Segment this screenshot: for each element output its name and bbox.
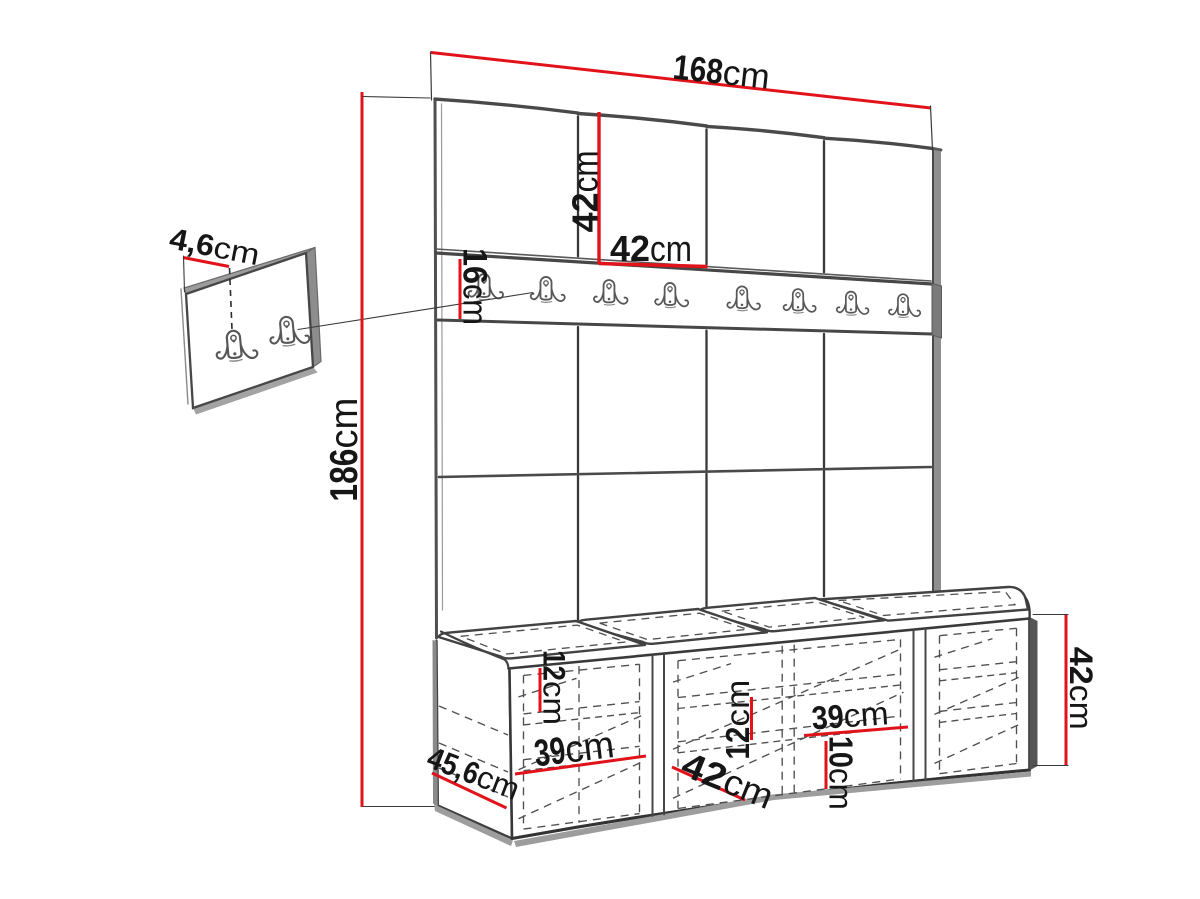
svg-text:12cm: 12cm bbox=[537, 650, 573, 725]
svg-text:10cm: 10cm bbox=[823, 736, 860, 810]
svg-text:39cm: 39cm bbox=[810, 694, 889, 736]
svg-text:42cm: 42cm bbox=[610, 228, 692, 269]
svg-text:16cm: 16cm bbox=[456, 248, 494, 325]
svg-text:186cm: 186cm bbox=[323, 398, 366, 502]
svg-text:42cm: 42cm bbox=[565, 150, 606, 232]
svg-text:12cm: 12cm bbox=[719, 680, 756, 760]
svg-text:42cm: 42cm bbox=[1063, 647, 1099, 730]
